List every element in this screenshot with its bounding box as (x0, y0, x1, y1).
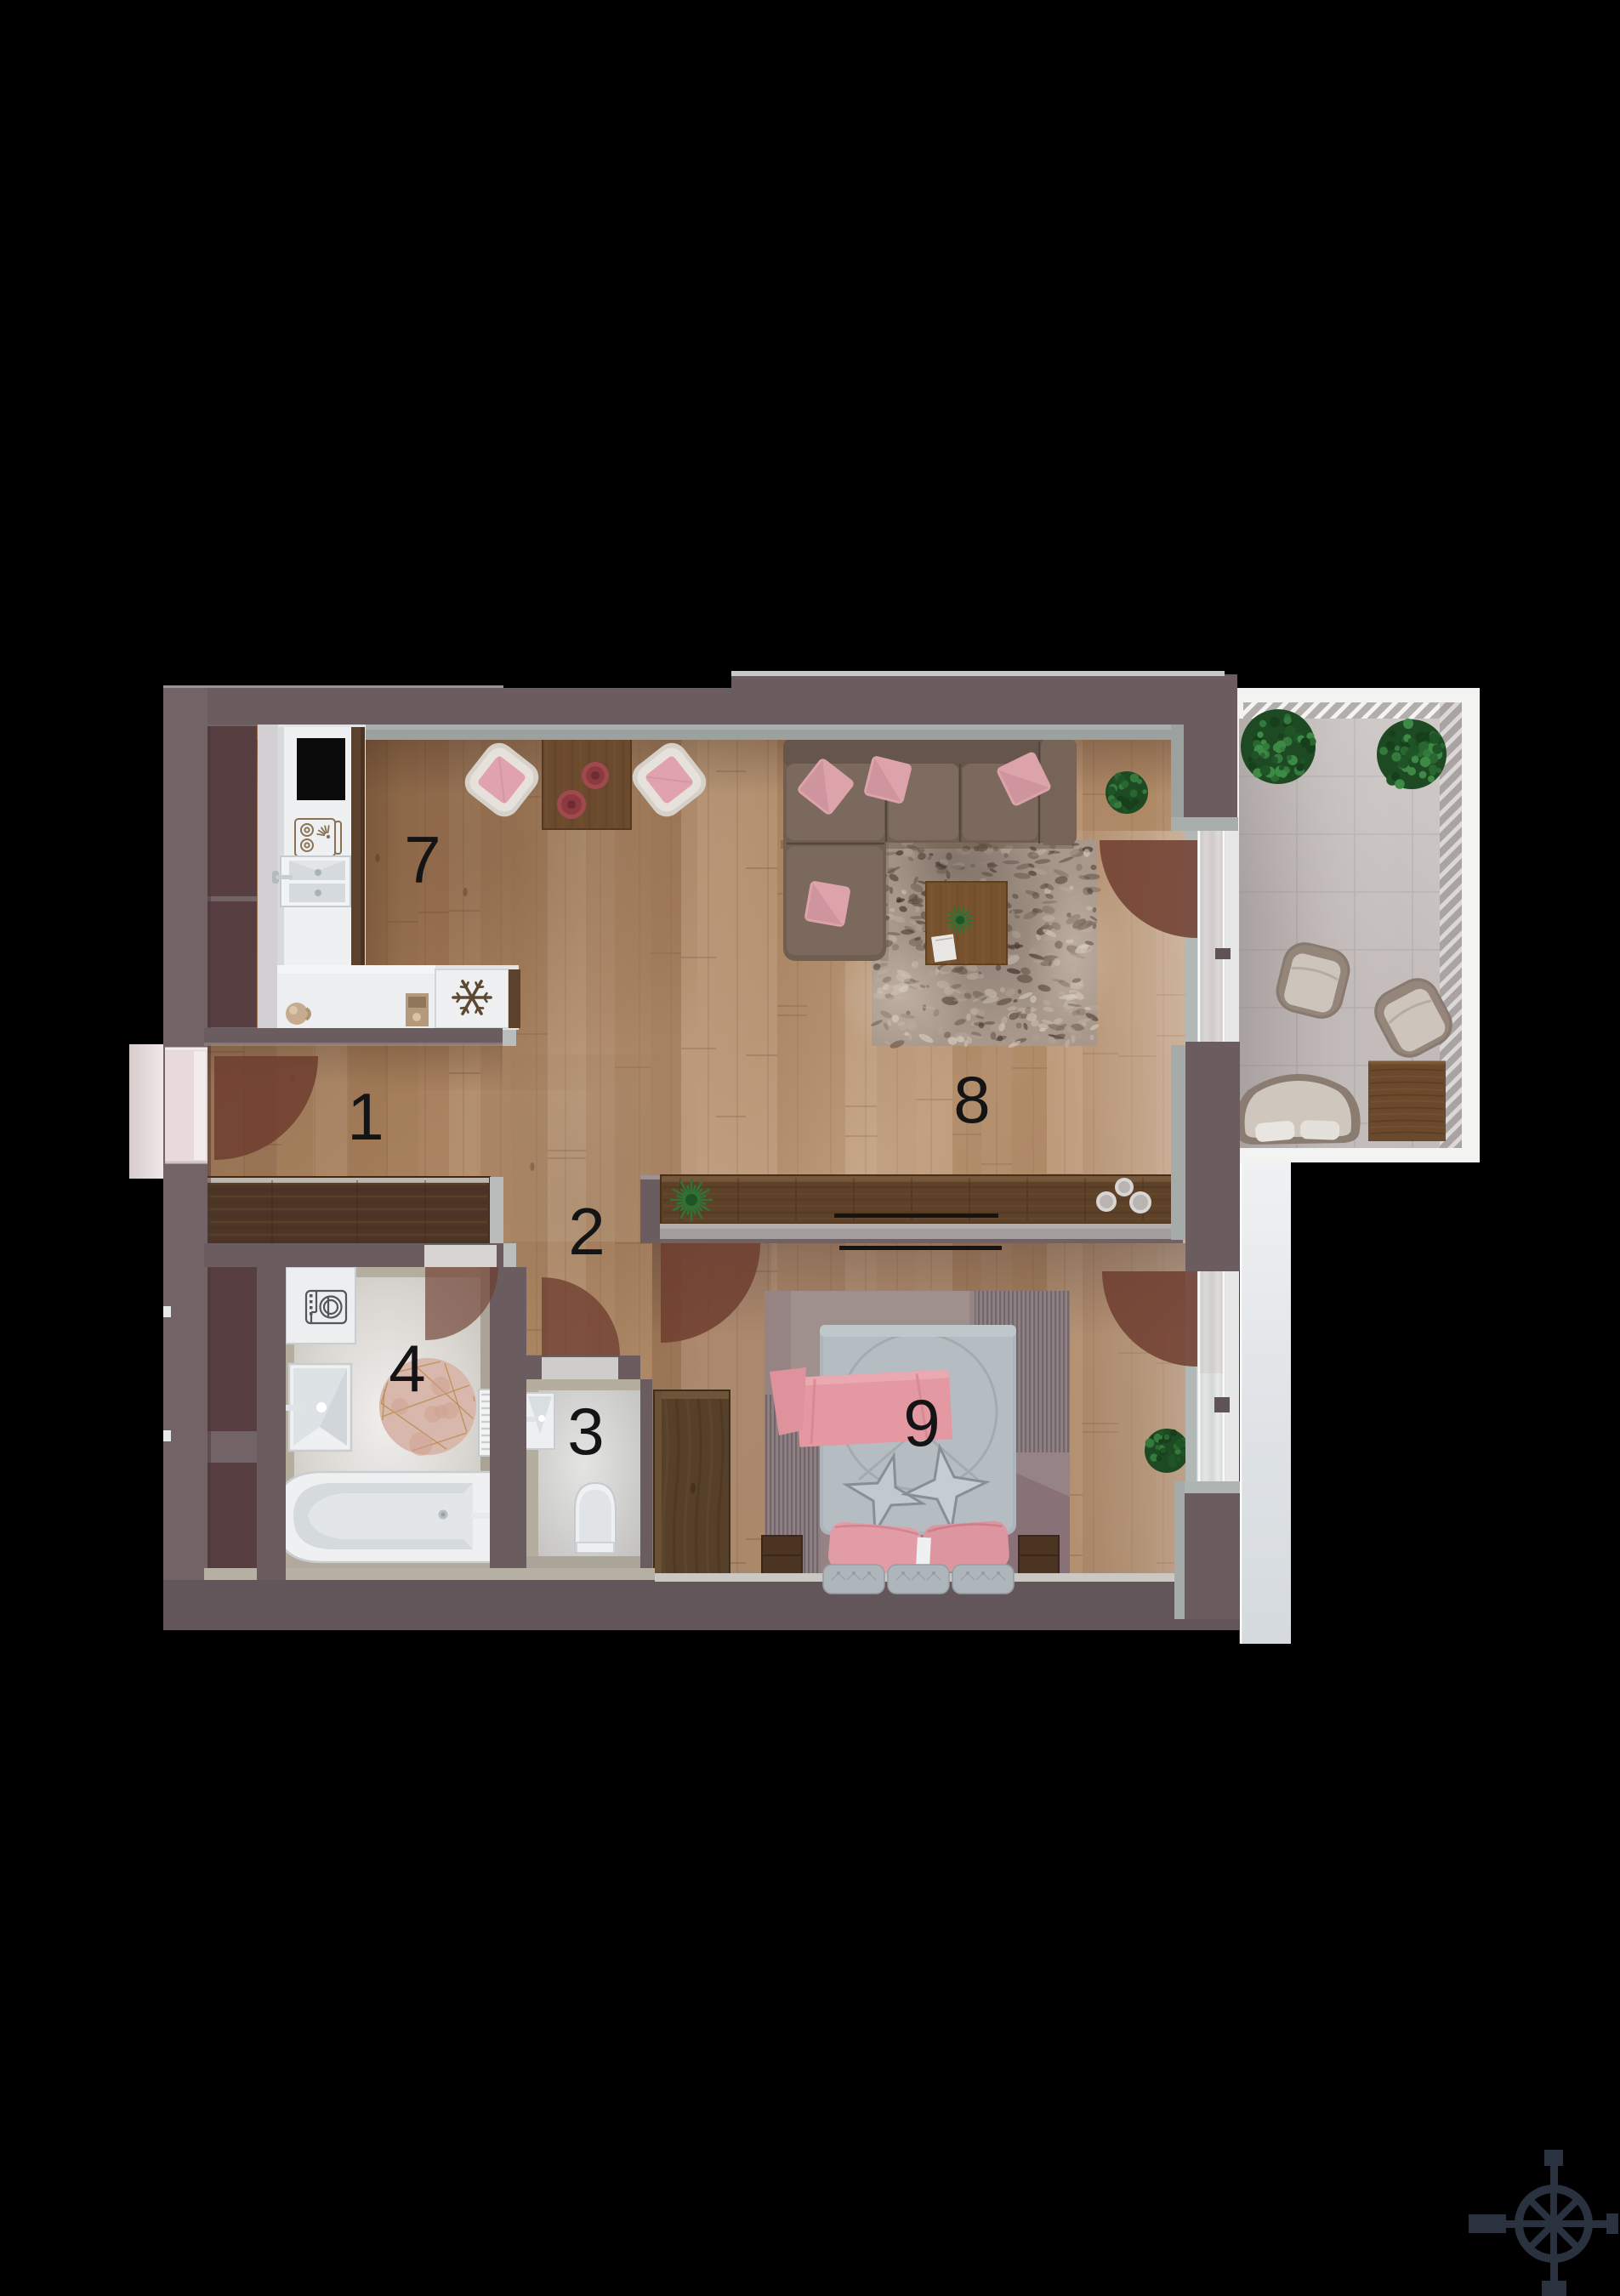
svg-text:9: 9 (903, 1385, 940, 1460)
svg-text:8: 8 (953, 1062, 990, 1137)
svg-text:1: 1 (347, 1079, 384, 1154)
svg-text:3: 3 (567, 1394, 604, 1469)
svg-text:2: 2 (568, 1194, 605, 1269)
svg-text:4: 4 (389, 1331, 425, 1406)
svg-text:7: 7 (404, 822, 441, 897)
